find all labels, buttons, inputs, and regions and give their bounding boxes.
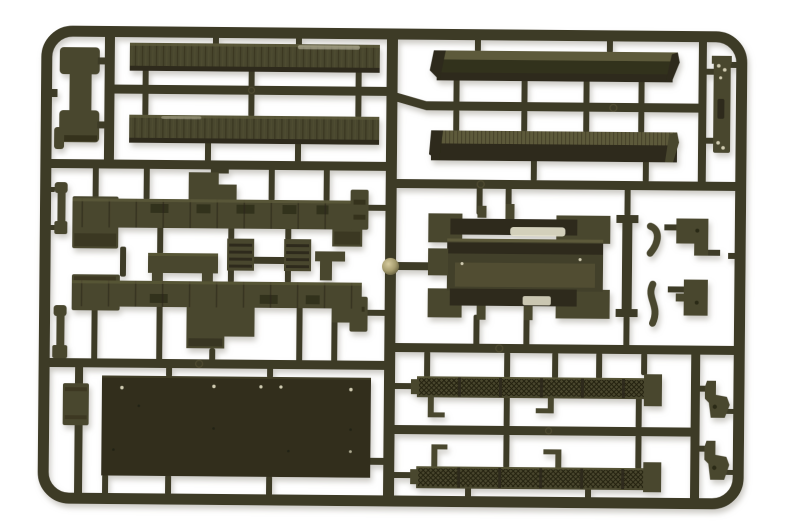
stowage-lid-part (63, 383, 89, 425)
sprue-photo (0, 0, 785, 532)
photo-canvas (0, 0, 785, 532)
bed-subframe-assembly (428, 203, 611, 321)
bed-side-beam-upper (430, 50, 680, 82)
treadplate-plank-lower (129, 115, 379, 145)
injection-gate-knob (382, 258, 399, 275)
ladder-rack-strip (711, 56, 732, 153)
cargo-floor-panel (101, 375, 371, 477)
louvered-panel-a (227, 239, 254, 271)
treadplate-plank-upper (130, 43, 380, 73)
bed-side-beam-lower (429, 130, 679, 162)
